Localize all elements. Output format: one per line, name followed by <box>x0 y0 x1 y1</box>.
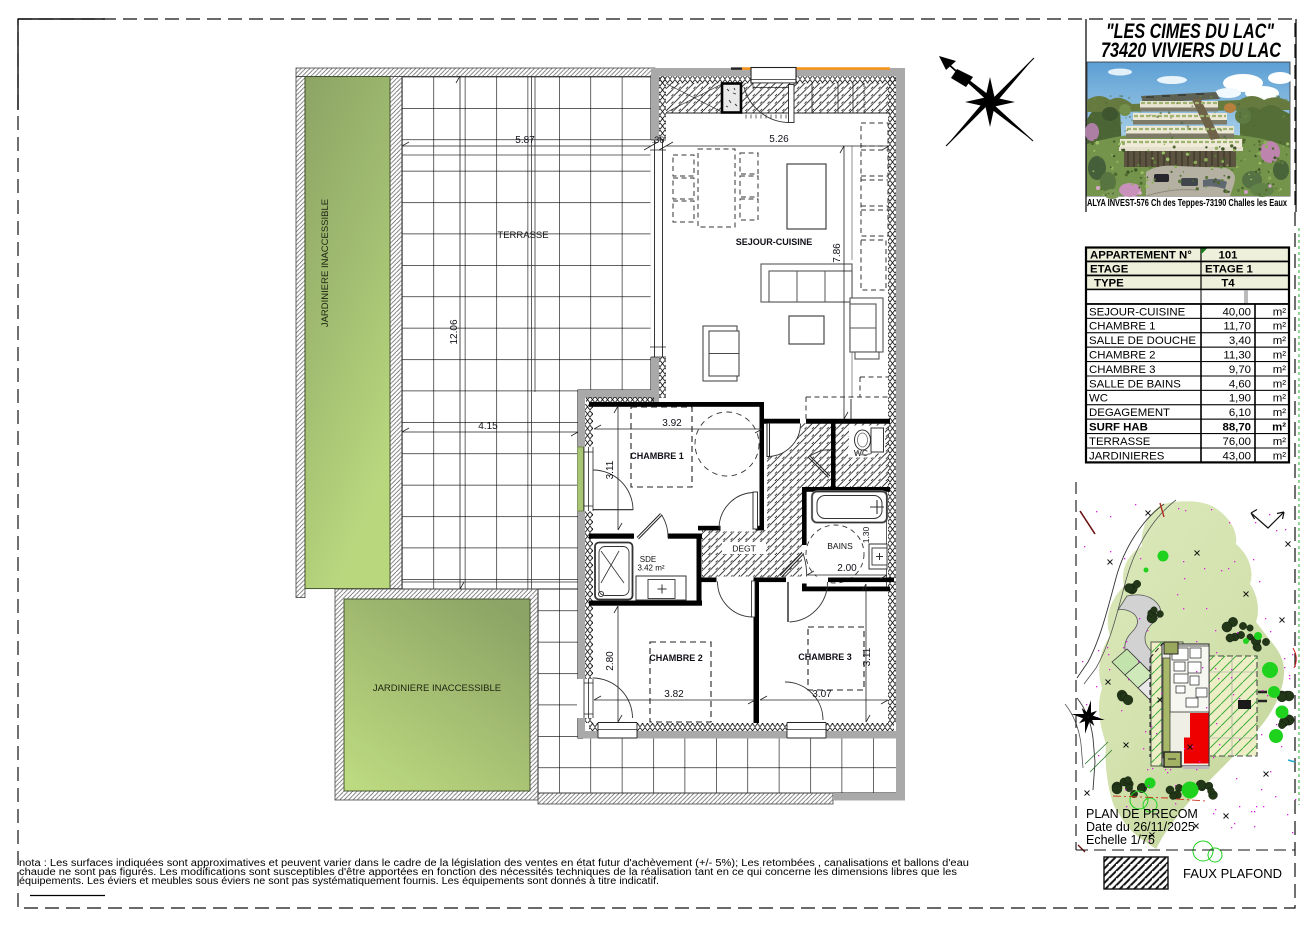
svg-text:11,70: 11,70 <box>1223 321 1251 333</box>
svg-text:SEJOUR-CUISINE: SEJOUR-CUISINE <box>736 237 813 247</box>
svg-text:m²: m² <box>1273 450 1286 462</box>
svg-text:7.86: 7.86 <box>832 243 843 263</box>
svg-text:5.26: 5.26 <box>769 134 789 145</box>
svg-text:m²: m² <box>1273 335 1286 347</box>
svg-text:DEGT: DEGT <box>732 544 756 554</box>
svg-text:76,00: 76,00 <box>1222 436 1251 448</box>
svg-text:3.07: 3.07 <box>812 689 832 700</box>
svg-text:T4: T4 <box>1221 278 1235 290</box>
svg-text:40,00: 40,00 <box>1222 306 1251 318</box>
svg-text:2.00: 2.00 <box>837 563 857 574</box>
svg-text:m²: m² <box>1273 306 1286 318</box>
svg-text:DEGAGEMENT: DEGAGEMENT <box>1089 407 1170 419</box>
svg-text:PLAN DE PRECOM: PLAN DE PRECOM <box>1086 807 1198 821</box>
svg-text:12.06: 12.06 <box>449 319 460 344</box>
svg-text:4,60: 4,60 <box>1229 378 1251 390</box>
svg-text:m²: m² <box>1273 378 1286 390</box>
svg-text:SURF HAB: SURF HAB <box>1089 422 1148 434</box>
svg-text:CHAMBRE 1: CHAMBRE 1 <box>630 451 684 461</box>
svg-text:3.92: 3.92 <box>662 418 682 429</box>
svg-text:CHAMBRE 1: CHAMBRE 1 <box>1089 321 1155 333</box>
svg-text:APPARTEMENT N°: APPARTEMENT N° <box>1090 250 1192 262</box>
svg-text:FAUX PLAFOND: FAUX PLAFOND <box>1183 866 1282 881</box>
svg-text:m²: m² <box>1273 321 1286 333</box>
svg-text:6,10: 6,10 <box>1229 407 1251 419</box>
svg-text:Date du 26/11/2025: Date du 26/11/2025 <box>1086 820 1195 834</box>
svg-text:m²: m² <box>1272 422 1286 434</box>
svg-text:73420 VIVIERS DU LAC: 73420 VIVIERS DU LAC <box>1101 39 1282 62</box>
svg-text:SALLE DE DOUCHE: SALLE DE DOUCHE <box>1089 335 1196 347</box>
svg-text:m²: m² <box>1273 436 1286 448</box>
svg-text:3.11: 3.11 <box>605 460 616 479</box>
svg-text:SEJOUR-CUISINE: SEJOUR-CUISINE <box>1089 306 1186 318</box>
svg-text:TERRASSE: TERRASSE <box>497 230 548 241</box>
svg-text:1.30: 1.30 <box>861 526 871 543</box>
svg-text:JARDINIERE INACCESSIBLE: JARDINIERE INACCESSIBLE <box>373 683 501 694</box>
svg-text:CHAMBRE 3: CHAMBRE 3 <box>798 652 852 662</box>
svg-text:TERRASSE: TERRASSE <box>1089 436 1151 448</box>
svg-text:JARDINIERE INACCESSIBLE: JARDINIERE INACCESSIBLE <box>320 199 331 327</box>
svg-text:JARDINIERES: JARDINIERES <box>1089 450 1165 462</box>
svg-text:88,70: 88,70 <box>1222 422 1251 434</box>
svg-text:CHAMBRE 2: CHAMBRE 2 <box>649 653 703 663</box>
svg-text:m²: m² <box>1273 350 1286 362</box>
svg-text:4.15: 4.15 <box>478 421 498 432</box>
svg-text:SALLE DE BAINS: SALLE DE BAINS <box>1089 378 1181 390</box>
svg-text:5.87: 5.87 <box>515 135 535 146</box>
svg-text:BAINS: BAINS <box>827 541 853 551</box>
svg-text:1,90: 1,90 <box>1229 393 1251 405</box>
svg-text:9,70: 9,70 <box>1229 364 1251 376</box>
svg-text:3.82: 3.82 <box>664 689 684 700</box>
svg-text:WC: WC <box>1089 393 1108 405</box>
svg-text:m²: m² <box>1273 393 1286 405</box>
svg-text:Echelle 1/75: Echelle 1/75 <box>1086 833 1155 847</box>
svg-text:m²: m² <box>1273 364 1286 376</box>
svg-text:2.80: 2.80 <box>605 651 616 671</box>
svg-text:ALYA INVEST-576 Ch des Teppes-: ALYA INVEST-576 Ch des Teppes-73190 Chal… <box>1087 197 1287 209</box>
svg-text:CHAMBRE 3: CHAMBRE 3 <box>1089 364 1155 376</box>
svg-text:CHAMBRE 2: CHAMBRE 2 <box>1089 350 1155 362</box>
svg-text:3,40: 3,40 <box>1229 335 1251 347</box>
svg-text:3.11: 3.11 <box>862 647 873 666</box>
svg-text:ETAGE 1: ETAGE 1 <box>1205 264 1254 276</box>
svg-text:43,00: 43,00 <box>1222 450 1251 462</box>
svg-text:équipements. Les éviers et meu: équipements. Les éviers et meubles sous … <box>19 876 659 887</box>
svg-text:11,30: 11,30 <box>1223 350 1251 362</box>
svg-text:101: 101 <box>1218 250 1238 262</box>
svg-text:3.42 m²: 3.42 m² <box>637 564 664 573</box>
svg-text:.36: .36 <box>652 135 665 145</box>
svg-text:m²: m² <box>1273 407 1286 419</box>
svg-text:ETAGE: ETAGE <box>1090 264 1129 276</box>
svg-text:TYPE: TYPE <box>1094 278 1124 290</box>
